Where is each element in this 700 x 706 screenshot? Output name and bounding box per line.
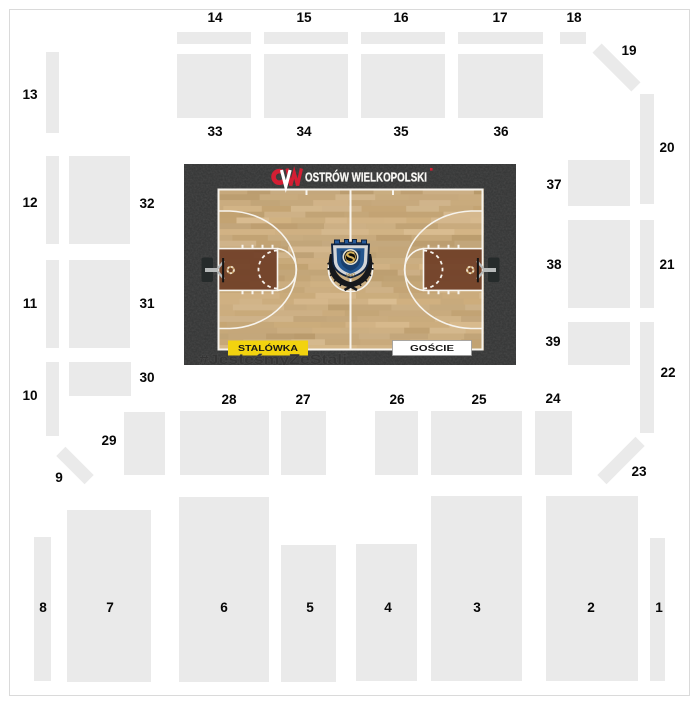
svg-text:#JesteśmyZeStali: #JesteśmyZeStali: [199, 351, 347, 365]
svg-text:GOŚCIE: GOŚCIE: [410, 342, 454, 353]
svg-text:1947: 1947: [346, 272, 356, 277]
svg-text:OSTRÓW WIELKOPOLSKI: OSTRÓW WIELKOPOLSKI: [305, 170, 427, 185]
